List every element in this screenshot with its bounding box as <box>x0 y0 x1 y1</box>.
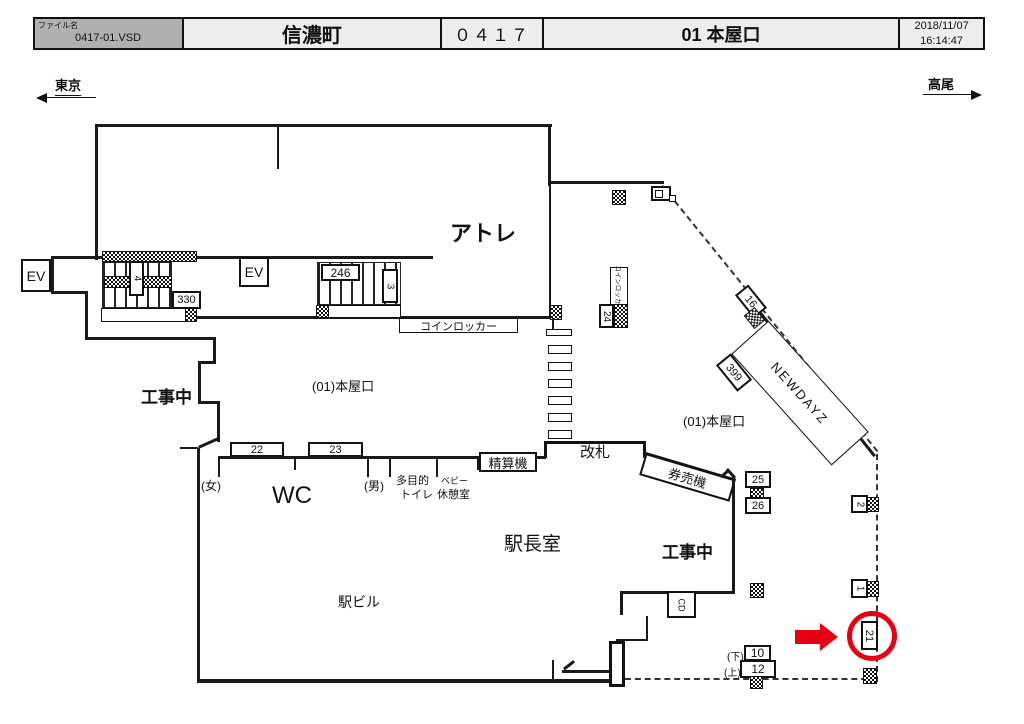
station-master-room-label: 駅長室 <box>504 529 561 556</box>
sign-26: 26 <box>745 497 771 514</box>
direction-right-arrow-icon <box>971 90 982 100</box>
sign-hatch <box>614 304 628 328</box>
direction-right-label: 高尾 <box>928 74 954 95</box>
phone-icon-attachment <box>669 195 676 202</box>
sign-21: 21 <box>861 621 878 650</box>
sign-22: 22 <box>230 442 284 457</box>
wall-segment <box>198 437 220 449</box>
wall-segment <box>294 456 296 470</box>
stairs-hatch <box>185 308 197 322</box>
stair-number-sign: 3 <box>382 269 398 303</box>
timestamp-cell: 2018/11/07 16:14:47 <box>900 19 983 48</box>
sign-2: 2 <box>851 495 868 513</box>
wall-segment <box>548 181 664 184</box>
fare-adjustment-machine: 精算機 <box>479 452 537 472</box>
gate-area-label-left: (01)本屋口 <box>312 376 374 395</box>
highlight-arrow-icon <box>820 623 838 651</box>
stairs-hatch <box>316 305 329 318</box>
newdays-shop: NEWDAYZ <box>731 321 869 466</box>
wall-segment <box>218 456 483 459</box>
baby-room-label2: 休憩室 <box>437 486 470 502</box>
pillar-hatch <box>612 190 626 205</box>
pillar <box>609 641 625 687</box>
direction-left-arrow-icon <box>36 93 47 103</box>
wall-segment <box>213 337 216 364</box>
gate-machine <box>548 345 572 354</box>
construction-label-right: 工事中 <box>662 538 713 563</box>
wall-segment <box>197 679 613 683</box>
wall-segment <box>197 448 200 682</box>
multipurpose-toilet-label2: トイレ <box>400 486 433 502</box>
wall-segment <box>180 447 198 449</box>
wall-segment <box>95 124 552 127</box>
elevator-east: EV <box>239 257 269 287</box>
wall-segment <box>367 456 369 477</box>
wall-segment <box>548 124 551 186</box>
wall-segment <box>646 616 648 641</box>
wall-segment <box>51 291 87 294</box>
gate-machine <box>548 413 572 422</box>
station-building-label: 駅ビル <box>338 592 380 612</box>
coin-locker-small-box: コインロッカー <box>610 267 628 308</box>
sign-10: 10 <box>744 645 771 661</box>
wall-segment <box>552 660 554 681</box>
sign-hatch <box>863 668 877 684</box>
sign-24: 24 <box>599 304 614 328</box>
gate-machine <box>548 362 572 371</box>
gate-machine <box>548 379 572 388</box>
elevator-west: EV <box>21 259 51 292</box>
sign-25: 25 <box>745 471 771 488</box>
sign-hatch <box>867 497 879 512</box>
station-code: ０４１７ <box>442 19 544 48</box>
title-bar: ファイル名 0417-01.VSD 信濃町 ０４１７ 01 本屋口 2018/1… <box>33 17 985 50</box>
wall-segment <box>85 337 216 340</box>
ticket-gate-label: 改札 <box>544 441 646 458</box>
men-toilet-label: (男) <box>364 477 384 494</box>
wall-segment <box>549 184 551 318</box>
stairs-landing <box>101 308 197 322</box>
stair-number-sign: 4 <box>129 261 144 296</box>
wall-segment <box>51 256 54 294</box>
cd-label: CD <box>677 598 687 611</box>
phone-icon-inner <box>655 190 663 198</box>
wall-segment <box>563 660 575 670</box>
women-toilet-label: (女) <box>201 477 221 494</box>
up-label: (上) <box>724 664 741 679</box>
direction-right-arrow-line <box>923 94 973 95</box>
wall-segment <box>85 291 88 340</box>
station-name: 信濃町 <box>184 19 442 48</box>
cd-machine: CD <box>667 591 696 618</box>
file-name-label: ファイル名 <box>38 20 78 31</box>
gate-title: 01 本屋口 <box>544 19 900 48</box>
wall-segment <box>732 477 735 594</box>
gate-machine <box>548 430 572 439</box>
sign-246: 246 <box>321 264 360 281</box>
wall-segment <box>436 456 438 477</box>
gate-area-label-right: (01)本屋口 <box>683 411 745 430</box>
stairs-hatch <box>102 251 197 262</box>
gate-machine <box>548 396 572 405</box>
gate-footing <box>546 329 572 336</box>
sign-1-label: 1 <box>854 586 865 592</box>
sign-hatch <box>867 581 879 597</box>
coin-locker-label: コインロッカー <box>399 318 518 333</box>
station-map-canvas: ファイル名 0417-01.VSD 信濃町 ０４１７ 01 本屋口 2018/1… <box>0 0 1024 724</box>
sign-23: 23 <box>308 442 363 457</box>
wall-segment <box>198 361 201 404</box>
atre-label: アトレ <box>450 216 516 248</box>
wall-segment <box>95 124 98 260</box>
direction-left-arrow-line <box>46 97 96 98</box>
direction-left-label: 東京 <box>55 75 81 96</box>
sign-1: 1 <box>851 579 868 598</box>
sign-21-label: 21 <box>864 629 876 641</box>
file-name-cell: ファイル名 0417-01.VSD <box>35 19 184 48</box>
stair-number: 4 <box>131 276 142 282</box>
file-name-value: 0417-01.VSD <box>75 32 141 44</box>
sign-24-label: 24 <box>601 310 612 321</box>
highlight-arrow-shaft <box>795 630 821 644</box>
sign-hatch <box>750 676 763 689</box>
wall-segment <box>389 456 391 477</box>
sign-2-label: 2 <box>854 501 865 507</box>
wall-segment <box>218 456 220 477</box>
sign-330: 330 <box>172 291 201 309</box>
wall-segment <box>277 127 279 169</box>
wc-label: WC <box>272 482 312 510</box>
pillar-hatch <box>750 583 764 598</box>
wall-segment <box>562 670 610 673</box>
time-value: 16:14:47 <box>920 34 963 49</box>
date-value: 2018/11/07 <box>914 19 968 34</box>
stair-number: 3 <box>385 283 396 289</box>
wall-segment <box>620 591 623 615</box>
construction-label-left: 工事中 <box>141 383 192 408</box>
